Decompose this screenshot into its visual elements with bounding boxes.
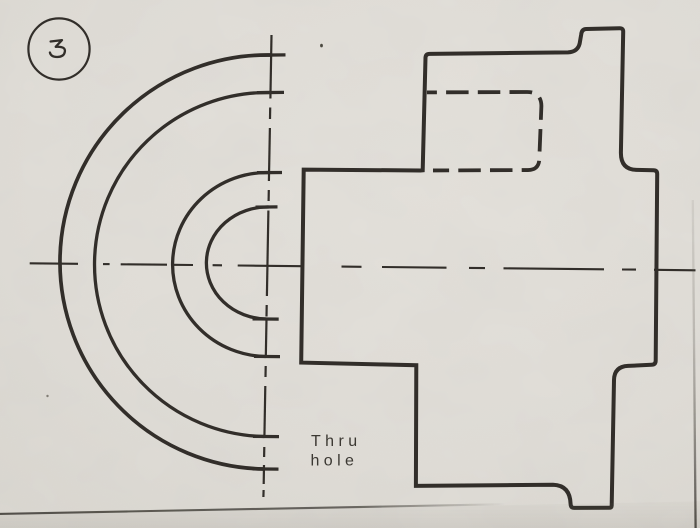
svg-text:Thru: Thru bbox=[311, 433, 362, 450]
svg-text:hole: hole bbox=[311, 452, 359, 469]
